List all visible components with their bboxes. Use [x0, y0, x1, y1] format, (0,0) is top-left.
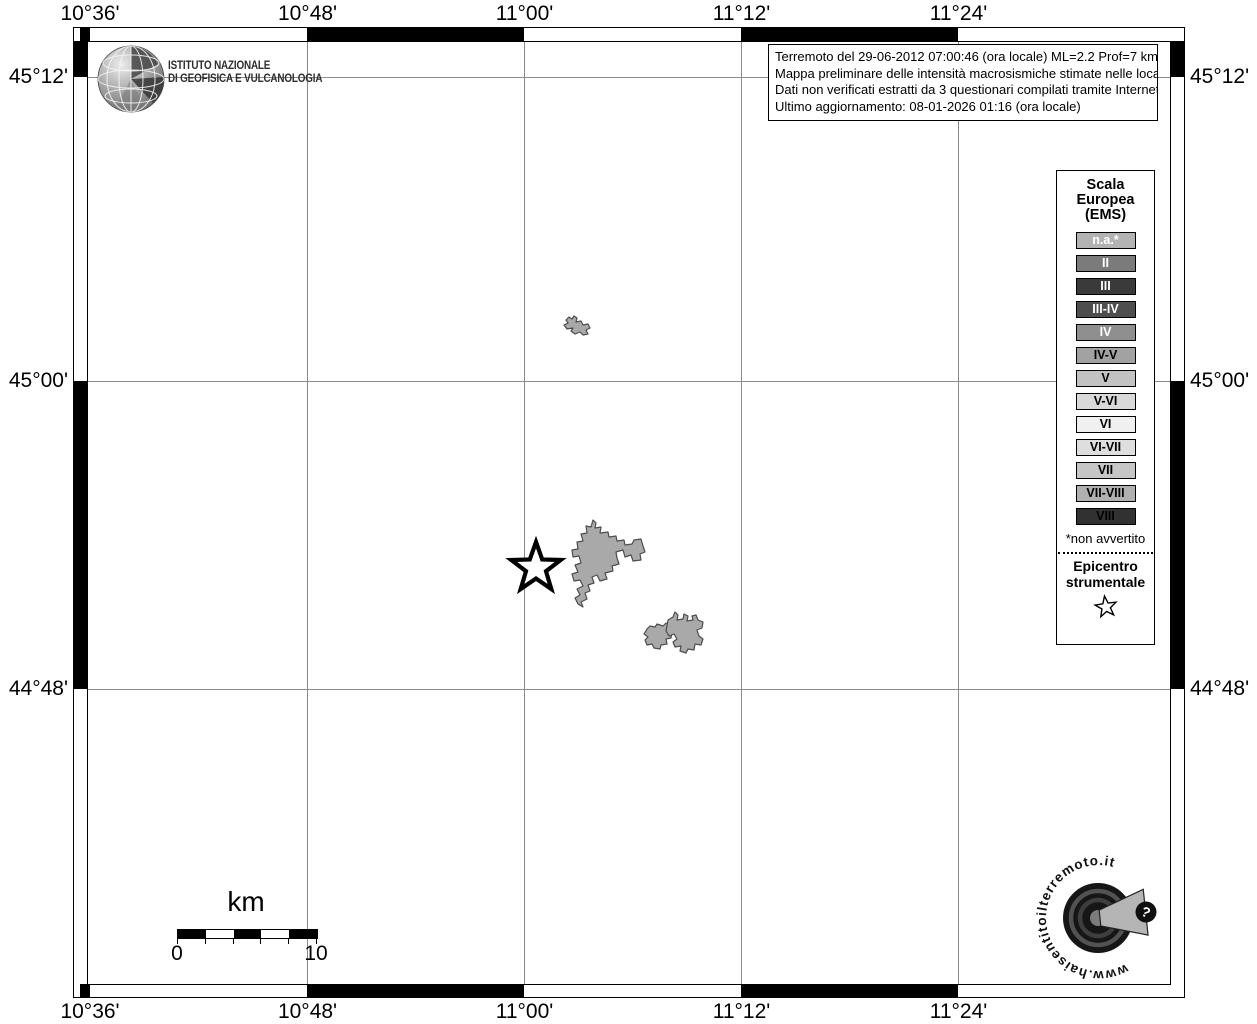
frame-segment — [80, 984, 90, 997]
legend-title-line3: (EMS) — [1057, 208, 1154, 223]
institute-name-line2: DI GEOFISICA E VULCANOLOGIA — [168, 73, 322, 86]
scale-bar-start-label: 0 — [171, 942, 183, 966]
scale-bar-tick — [233, 938, 234, 944]
tick-label-top: 11°12' — [713, 2, 771, 26]
legend-intensity-box: VII-VIII — [1076, 485, 1136, 502]
tick-label-bottom: 11°00' — [496, 1000, 554, 1024]
frame-segment — [1171, 381, 1184, 689]
gridline-vertical — [307, 42, 308, 984]
legend-intensity-box: IV-V — [1076, 347, 1136, 364]
legend-epicenter-line2: strumentale — [1057, 574, 1154, 590]
legend-intensity-box: IV — [1076, 324, 1136, 341]
scale-bar — [177, 929, 318, 939]
scale-bar-tick — [260, 938, 261, 944]
map-frame-inner — [87, 41, 1171, 985]
scale-bar-segment — [178, 930, 206, 938]
ingv-institute-name: ISTITUTO NAZIONALE DI GEOFISICA E VULCAN… — [168, 60, 322, 86]
scale-bar-segment — [234, 930, 262, 938]
legend-title: Scala Europea (EMS) — [1057, 178, 1154, 223]
tick-label-right: 45°12' — [1190, 65, 1249, 89]
legend-intensity-box: VIII — [1076, 508, 1136, 525]
legend-intensity-box: n.a.* — [1076, 232, 1136, 249]
frame-segment — [307, 984, 524, 997]
haisentitoilterremoto-logo: www.haisentitoilterremoto.it ? — [1036, 855, 1162, 981]
info-line-data-source: Dati non verificati estratti da 3 questi… — [775, 82, 1151, 99]
frame-segment — [741, 984, 958, 997]
gridline-vertical — [958, 42, 959, 984]
scale-bar-tick — [205, 938, 206, 944]
legend-intensity-box: V-VI — [1076, 393, 1136, 410]
frame-segment — [80, 28, 90, 41]
tick-label-bottom: 11°12' — [713, 1000, 771, 1024]
scale-bar-tick — [288, 938, 289, 944]
tick-label-bottom: 11°24' — [930, 1000, 988, 1024]
frame-segment — [307, 28, 524, 41]
legend-intensity-box: VII — [1076, 462, 1136, 479]
tick-label-bottom: 10°48' — [278, 1000, 337, 1024]
scale-bar-unit: km — [227, 886, 264, 918]
legend-intensity-items: n.a.*IIIIIIII-IVIVIV-VVV-VIVIVI-VIIVIIVI… — [1057, 232, 1154, 525]
scale-bar-segment — [206, 930, 234, 938]
frame-segment — [74, 41, 87, 77]
legend-footnote: *non avvertito — [1057, 531, 1154, 546]
legend-intensity-box: III-IV — [1076, 301, 1136, 318]
legend-title-line2: Europea — [1057, 193, 1154, 208]
tick-label-right: 44°48' — [1190, 677, 1249, 701]
tick-label-left: 45°00' — [2, 369, 68, 393]
info-line-updated: Ultimo aggiornamento: 08-01-2026 01:16 (… — [775, 99, 1151, 116]
tick-label-left: 44°48' — [2, 677, 68, 701]
tick-label-left: 45°12' — [2, 65, 68, 89]
legend-intensity-box: VI-VII — [1076, 439, 1136, 456]
legend-epicenter-star-icon — [1093, 594, 1119, 619]
ingv-globe-logo — [95, 43, 167, 115]
gridline-vertical — [741, 42, 742, 984]
info-line-event: Terremoto del 29-06-2012 07:00:46 (ora l… — [775, 49, 1151, 66]
legend-intensity-box: III — [1076, 278, 1136, 295]
legend-intensity-box: II — [1076, 255, 1136, 272]
legend-intensity-box: VI — [1076, 416, 1136, 433]
legend-epicenter-line1: Epicentro — [1057, 558, 1154, 574]
macroseismic-map-page: 10°36'10°36'10°48'10°48'11°00'11°00'11°1… — [0, 0, 1257, 1024]
tick-label-top: 10°48' — [278, 2, 337, 26]
frame-segment — [74, 381, 87, 689]
institute-name-line1: ISTITUTO NAZIONALE — [168, 60, 322, 73]
tick-label-top: 11°00' — [496, 2, 554, 26]
legend-epicenter-label: Epicentro strumentale — [1057, 558, 1154, 590]
scale-bar-segment — [261, 930, 289, 938]
scale-bar-segment — [289, 930, 317, 938]
tick-label-right: 45°00' — [1190, 369, 1249, 393]
earthquake-info-box: Terremoto del 29-06-2012 07:00:46 (ora l… — [768, 44, 1158, 121]
tick-label-bottom: 10°36' — [60, 1000, 119, 1024]
scale-bar-end-label: 10 — [304, 942, 327, 966]
tick-label-top: 11°24' — [930, 2, 988, 26]
legend-title-line1: Scala — [1057, 178, 1154, 193]
gridline-horizontal — [88, 689, 1170, 690]
legend-divider — [1058, 552, 1153, 554]
gridline-horizontal — [88, 381, 1170, 382]
tick-label-top: 10°36' — [60, 2, 119, 26]
ems-scale-legend: Scala Europea (EMS) n.a.*IIIIIIII-IVIVIV… — [1056, 170, 1155, 645]
legend-intensity-box: V — [1076, 370, 1136, 387]
frame-segment — [741, 28, 958, 41]
info-line-map-type: Mappa preliminare delle intensità macros… — [775, 66, 1151, 83]
frame-segment — [1171, 41, 1184, 77]
gridline-vertical — [524, 42, 525, 984]
